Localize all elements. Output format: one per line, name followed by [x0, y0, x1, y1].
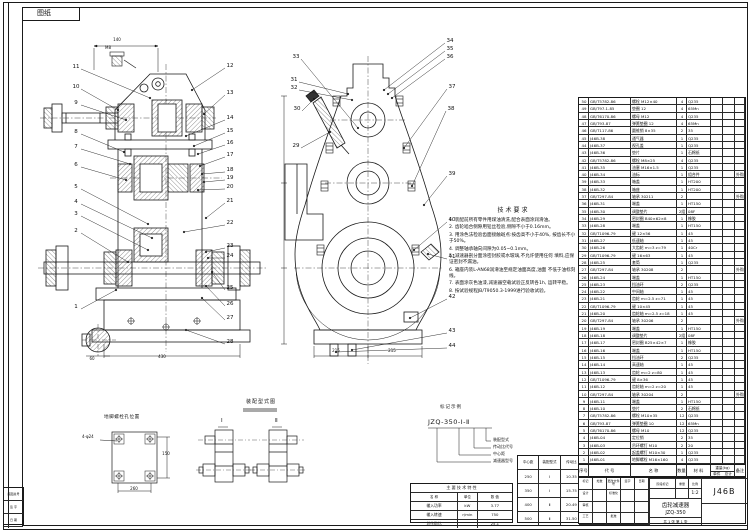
leader-dot-15 [193, 145, 195, 147]
bom-cell: J46B-23 [589, 281, 631, 287]
bom-cell: 1 [677, 376, 687, 382]
bom-cell: 1 [677, 383, 687, 389]
bom-cell: 12 [677, 412, 687, 418]
bom-row: 23J46B-21齿轮 m=2.5 z=71145 [579, 295, 745, 302]
designation-label-2: 传动比代号 [493, 445, 513, 449]
leader-dot-17 [199, 165, 201, 167]
bom-cell [735, 178, 745, 184]
bom-cell: 垫片 [631, 405, 677, 411]
bom-row: 35J46B-30调整垫片2组08F [579, 208, 745, 215]
bom-cell: J46B-30 [589, 208, 631, 214]
leader-line-22 [184, 225, 225, 232]
bom-cell: 21 [579, 310, 589, 316]
bom-cell: HT200 [687, 186, 711, 192]
spec-cell: 总传动比 [411, 520, 458, 528]
bom-cell [711, 303, 723, 309]
bom-cell [723, 339, 735, 345]
title-block-grid-cell: 日期 [635, 478, 649, 489]
bom-cell: 50 [579, 98, 589, 104]
front-view-callout-26: 26 [227, 302, 234, 308]
technical-notes: 技术要求 1. 装配前所有零件用煤油清洗,配合表面涂润滑油。2. 齿轮啮合侧隙用… [449, 207, 578, 297]
bom-row: 5GB/T6170-86螺母 M1012Q235 [579, 427, 745, 434]
bom-cell: 65Mn [687, 105, 711, 111]
bom-cell [711, 325, 723, 331]
leader-dot-4 [151, 237, 153, 239]
bom-cell [711, 208, 723, 214]
bom-cell: 15 [579, 354, 589, 360]
leader-dot-37 [403, 147, 405, 149]
bom-cell: 65Mn [687, 420, 711, 426]
bom-cell [687, 391, 711, 397]
assembly-type-diagrams [196, 409, 306, 482]
bom-cell: 25 [579, 281, 589, 287]
bom-row: 50GB/T5782-86螺栓 M12×404Q235 [579, 98, 745, 105]
bom-cell [735, 339, 745, 345]
bom-cell: 4 [677, 456, 687, 462]
bom-cell: HT150 [687, 398, 711, 404]
bom-cell: Q235 [687, 456, 711, 462]
leader-dot-7 [129, 163, 131, 165]
drawing-number-cell: J46B [701, 478, 747, 503]
bom-cell: GB/T297-84 [589, 193, 631, 199]
bom-cell: 4 [677, 113, 687, 119]
bom-cell: HT150 [687, 325, 711, 331]
bom-table: 50GB/T5782-86螺栓 M12×404Q23549GB/T97.1-85… [578, 97, 746, 477]
bom-cell [711, 339, 723, 345]
bom-cell [735, 288, 745, 294]
designation-leaders [428, 428, 492, 462]
bom-cell: 29 [579, 252, 589, 258]
bom-cell: 轴承 30206 [631, 317, 677, 323]
variant-table: 中心距装配型式传动比250Ⅰ10.35350Ⅰ15.75400Ⅱ20.49500… [517, 455, 583, 523]
title-block-grid-cell: 审核 [579, 502, 593, 513]
bom-cell [735, 259, 745, 265]
spec-cell: r/min [458, 511, 478, 519]
bom-cell [711, 288, 723, 294]
bom-cell: J46B-12 [589, 383, 631, 389]
bom-cell [711, 135, 723, 141]
bom-cell: 08F [687, 208, 711, 214]
bom-cell: 起盖螺钉 M10×30 [631, 449, 677, 455]
bom-cell: J46B-03 [589, 442, 631, 448]
bom-cell: 18 [579, 332, 589, 338]
front-view-callout-23: 23 [227, 244, 234, 250]
spec-table-title-row: 主 要 技 术 特 性 [411, 484, 512, 493]
bom-row: 44J46B-37视孔盖1Q235 [579, 142, 745, 149]
bom-cell [723, 274, 735, 280]
bom-cell: GB/T1096-79 [589, 252, 631, 258]
bom-cell: 1 [677, 288, 687, 294]
bom-cell: GB/T93-87 [589, 420, 631, 426]
bom-cell [723, 288, 735, 294]
bom-cell [711, 369, 723, 375]
title-block-grid-cell [593, 502, 607, 513]
bom-cell: 2 [677, 354, 687, 360]
bom-cell [735, 244, 745, 250]
front-view-callout-5: 5 [74, 185, 78, 191]
bom-cell: 2 [677, 193, 687, 199]
bom-row: 33J46B-28端盖1HT150 [579, 222, 745, 229]
bom-cell [723, 215, 735, 221]
bom-cell [723, 259, 735, 265]
bom-cell: 齿轮 m=2 z=80 [631, 369, 677, 375]
note-item-8: 8. 按试验规程JB/T9050.3-1999进行验收试验。 [449, 289, 578, 295]
bom-cell: J46B-37 [589, 142, 631, 148]
bom-cell [711, 442, 723, 448]
bom-cell: 4 [677, 120, 687, 126]
bom-cell [711, 354, 723, 360]
bom-cell: 6 [579, 420, 589, 426]
title-block-grid-row: 标记处数更改文件号签字日期 [579, 478, 649, 490]
bom-cell: J46B-22 [589, 288, 631, 294]
bom-cell [723, 405, 735, 411]
front-view-callout-12: 12 [227, 64, 234, 70]
bom-header-no: 序号 [579, 465, 589, 477]
bom-row: 10GB/T297-84轴承 302042外购 [579, 391, 745, 398]
title-block-grid-cell [635, 502, 649, 513]
bom-cell: 13 [579, 369, 589, 375]
engineering-drawing-sheet: 图纸 底图总号签 字日 期 [0, 0, 749, 530]
bom-cell [735, 310, 745, 316]
bom-cell [711, 420, 723, 426]
bom-cell: 45 [687, 252, 711, 258]
bom-cell: 45 [687, 303, 711, 309]
bom-cell: 45 [687, 361, 711, 367]
bom-cell [735, 376, 745, 382]
dim-value-1: M8 [105, 46, 111, 50]
bom-cell: GB/T6170-86 [589, 427, 631, 433]
bom-cell: 1 [677, 295, 687, 301]
bom-cell: 45 [687, 376, 711, 382]
bom-cell [735, 434, 745, 440]
bom-row: 22GB/T1096-79键 10×45145 [579, 303, 745, 310]
bom-cell: GB/T5782-86 [589, 157, 631, 163]
bom-cell: 9 [579, 398, 589, 404]
bom-cell [723, 347, 735, 353]
leader-dot-26 [205, 285, 207, 287]
leader-dot-20 [197, 189, 199, 191]
variant-table-row: 350Ⅰ15.75 [518, 484, 582, 498]
bom-cell: 36 [579, 200, 589, 206]
spec-cell: 3.77 [478, 502, 512, 510]
bom-row: 32GB/T1096-79键 12×56145 [579, 230, 745, 237]
dim-value-5: 215 [388, 349, 396, 353]
leader-line-43 [352, 333, 447, 350]
bom-cell: Q235 [687, 113, 711, 119]
bom-cell: 31 [579, 237, 589, 243]
bom-cell: 7 [579, 412, 589, 418]
bom-cell: 螺栓 M10×35 [631, 412, 677, 418]
bom-cell: 49 [579, 105, 589, 111]
bom-cell: 低速轴 [631, 237, 677, 243]
bom-cell [723, 369, 735, 375]
bom-cell: 2组 [677, 208, 687, 214]
bom-cell: 键 16×63 [631, 252, 677, 258]
bom-row: 3J46B-03吊环螺钉 M10220 [579, 442, 745, 449]
front-view-callout-27: 27 [227, 316, 234, 322]
bom-cell [735, 98, 745, 104]
bom-cell: J46B-32 [589, 186, 631, 192]
bom-cell: J46B-15 [589, 354, 631, 360]
variant-cell: 500 [518, 512, 539, 525]
bom-cell: Q235 [687, 135, 711, 141]
bom-cell [735, 281, 745, 287]
bom-row: 49GB/T97.1-85垫圈 12465Mn [579, 105, 745, 112]
bom-cell: 端盖 [631, 325, 677, 331]
leader-line-15 [194, 133, 225, 146]
bom-cell: GB/T117-86 [589, 127, 631, 133]
bom-cell [723, 135, 735, 141]
bom-cell: Q235 [687, 98, 711, 104]
bom-cell: 2组 [677, 332, 687, 338]
leader-dot-18 [201, 173, 203, 175]
bom-cell: 43 [579, 149, 589, 155]
dim-value-7: 150 [162, 452, 170, 456]
spec-header-cell: 名 称 [411, 493, 458, 501]
bom-cell [723, 449, 735, 455]
title-block-grid-cell [621, 490, 635, 501]
bom-cell [711, 252, 723, 258]
title-block-grid-cell: 签字 [621, 478, 635, 489]
bom-cell [711, 178, 723, 184]
bom-cell: 14 [579, 361, 589, 367]
bom-cell: J46B-18 [589, 332, 631, 338]
bom-row: 24J46B-22中间轴145 [579, 288, 745, 295]
side-view-callout-43: 43 [449, 329, 456, 335]
sheet-count-cell: 共 1 张 第 1 张 [649, 517, 701, 525]
leader-line-12 [192, 68, 225, 90]
front-view-callout-22: 22 [227, 221, 234, 227]
bom-cell [723, 456, 735, 462]
bom-cell: 油塞 M16×1.5 [631, 164, 677, 170]
title-block: 标记处数更改文件号签字日期设计标准化审核工艺批准 阶段标记 重量 比例 1:2 … [578, 477, 746, 524]
title-block-grid-row: 审核 [579, 502, 649, 514]
bom-cell: 1 [677, 398, 687, 404]
bom-row: 29GB/T1096-79键 16×63145 [579, 252, 745, 259]
front-view-callout-18: 18 [227, 168, 234, 174]
bom-cell: GB/T297-84 [589, 266, 631, 272]
bom-cell [711, 149, 723, 155]
bom-cell: 45 [687, 383, 711, 389]
bom-cell [735, 361, 745, 367]
bom-cell [687, 193, 711, 199]
bom-row: 1J46B-01地脚螺栓 M16×1604Q235 [579, 456, 745, 463]
bom-cell: 轴承 30204 [631, 391, 677, 397]
leader-line-42 [410, 299, 447, 318]
bom-cell: Q235 [687, 164, 711, 170]
bom-row: 28J46B-25套筒1Q235 [579, 259, 745, 266]
bom-cell [735, 230, 745, 236]
leader-dot-19 [203, 181, 205, 183]
bom-cell: GB/T1096-79 [589, 376, 631, 382]
spec-table-header-row: 名 称单位数 值 [411, 493, 512, 502]
bom-cell: 28 [579, 259, 589, 265]
side-view [281, 56, 442, 364]
title-block-grid-row: 设计标准化 [579, 490, 649, 502]
bom-cell [723, 266, 735, 272]
plate-hole-label: 4-φ24 [82, 435, 94, 439]
bom-cell: 47 [579, 120, 589, 126]
bom-cell [711, 434, 723, 440]
spec-header-cell: 数 值 [478, 493, 512, 501]
scale-label-cell: 比例 [688, 478, 701, 488]
bom-cell [711, 332, 723, 338]
leader-dot-5 [147, 223, 149, 225]
bom-cell [711, 295, 723, 301]
bom-cell [711, 383, 723, 389]
bom-cell: 箱座 [631, 186, 677, 192]
bom-cell: 键 10×45 [631, 303, 677, 309]
bom-cell: 套筒 [631, 259, 677, 265]
bom-cell: 视孔盖 [631, 142, 677, 148]
bom-cell: 08F [687, 332, 711, 338]
product-name: 齿轮减速器 [650, 501, 701, 509]
bom-cell [723, 244, 735, 250]
bom-cell: 橡胶 [687, 215, 711, 221]
bom-cell: 2 [677, 405, 687, 411]
bom-cell: 4 [677, 105, 687, 111]
title-block-grid-cell: 处数 [593, 478, 607, 489]
variant-cell: Ⅱ [539, 512, 560, 525]
bom-cell [711, 164, 723, 170]
bom-cell: 中间轴 [631, 288, 677, 294]
bom-cell: 调整垫片 [631, 332, 677, 338]
bom-cell [735, 295, 745, 301]
bom-cell [735, 405, 745, 411]
bom-cell: J46B-28 [589, 222, 631, 228]
designation-label-3: 中心距 [493, 452, 505, 456]
side-view-callout-30: 30 [294, 107, 301, 113]
bom-cell [723, 222, 735, 228]
bom-cell: 外购 [735, 391, 745, 397]
bom-cell: GB/T297-84 [589, 391, 631, 397]
bom-row: 43J46B-36垫片1石棉纸 [579, 149, 745, 156]
title-block-signature-grid: 标记处数更改文件号签字日期设计标准化审核工艺批准 [579, 478, 649, 525]
front-view-callout-14: 14 [227, 116, 234, 122]
title-block-grid-cell [607, 502, 621, 513]
bom-cell: 挡油环 [631, 281, 677, 287]
leader-dot-38 [411, 185, 413, 187]
bom-cell [735, 215, 745, 221]
bom-cell: J46B-13 [589, 369, 631, 375]
bom-cell: 端盖 [631, 274, 677, 280]
bom-cell: 1 [677, 252, 687, 258]
bom-cell: 组合件 [687, 171, 711, 177]
bom-cell: 1 [677, 237, 687, 243]
bom-cell [711, 200, 723, 206]
variant-table-header: 中心距装配型式传动比 [518, 456, 582, 470]
assembly-variant-2-label: Ⅱ [275, 419, 278, 425]
bom-cell [735, 325, 745, 331]
leader-dot-30 [313, 98, 315, 100]
bom-cell: 37 [579, 193, 589, 199]
bom-cell [711, 310, 723, 316]
bom-cell [711, 171, 723, 177]
bom-cell: 外购 [735, 266, 745, 272]
bom-cell [711, 127, 723, 133]
bom-cell [711, 274, 723, 280]
bom-cell: 螺栓 M12×40 [631, 98, 677, 104]
leader-line-34 [384, 43, 445, 90]
bom-row: 34J46B-29密封圈 B40×62×81橡胶 [579, 215, 745, 222]
bom-cell: 密封圈 B25×42×7 [631, 339, 677, 345]
leader-dot-12 [191, 89, 193, 91]
bom-row: 6GB/T93-87弹簧垫圈 101265Mn [579, 420, 745, 427]
bom-cell: J46B-36 [589, 149, 631, 155]
bom-cell: 2 [677, 442, 687, 448]
note-item-6: 6. 箱座内装L-AN68润滑油至规定油面高度,油面 不低于油标刻线。 [449, 268, 578, 280]
bom-cell: J46B-21 [589, 295, 631, 301]
dim-value-6: 260 [130, 487, 138, 491]
variant-cell: 350 [518, 484, 539, 497]
bom-cell: 1 [677, 361, 687, 367]
front-view-callout-19: 19 [227, 176, 234, 182]
bom-cell [735, 237, 745, 243]
bom-cell [711, 347, 723, 353]
bom-cell [711, 391, 723, 397]
bom-cell: 2 [677, 434, 687, 440]
front-view-callout-4: 4 [74, 200, 78, 206]
bom-cell: 20 [687, 442, 711, 448]
dim-value-3: 60 [89, 357, 94, 361]
bom-cell: 3 [579, 442, 589, 448]
bom-cell [711, 157, 723, 163]
note-item-2: 2. 齿轮啮合侧隙用铅丝检验,侧隙不小于0.16mm。 [449, 225, 578, 231]
bom-cell [711, 222, 723, 228]
bom-cell: 齿轮 m=2.5 z=71 [631, 295, 677, 301]
bom-cell [735, 332, 745, 338]
bom-cell: Q235 [687, 142, 711, 148]
bom-cell: 4 [677, 98, 687, 104]
spec-cell: 25.1 [478, 520, 512, 528]
bom-cell [735, 200, 745, 206]
spec-cell: 750 [478, 511, 512, 519]
bom-cell: 螺母 M12 [631, 113, 677, 119]
weight-value-cell [675, 488, 688, 498]
bom-cell: 33 [579, 222, 589, 228]
bom-cell [723, 120, 735, 126]
variant-cell: 400 [518, 498, 539, 511]
bom-cell [723, 391, 735, 397]
bom-cell: 45 [579, 135, 589, 141]
side-view-callout-29: 29 [293, 144, 300, 150]
bom-cell [735, 420, 745, 426]
bom-cell [723, 230, 735, 236]
bom-row: 20GB/T297-84轴承 302062外购 [579, 317, 745, 324]
bom-row: 4J46B-04定位销235 [579, 434, 745, 441]
bom-cell: 35 [687, 127, 711, 133]
bom-cell: 2 [677, 391, 687, 397]
bom-cell: 1 [677, 222, 687, 228]
assembly-variant-1-label: Ⅰ [221, 419, 223, 425]
bom-cell: 32 [579, 230, 589, 236]
bom-row: 8J46B-10垫片2石棉纸 [579, 405, 745, 412]
front-view-callout-21: 21 [227, 199, 234, 205]
bom-cell [687, 266, 711, 272]
title-block-grid-cell [635, 490, 649, 501]
dim-value-0: 140 [113, 38, 121, 42]
title-block-grid-cell: 标记 [579, 478, 593, 489]
leader-line-31 [299, 82, 348, 94]
bom-cell: 38 [579, 186, 589, 192]
bom-cell [735, 412, 745, 418]
bom-cell: 48 [579, 113, 589, 119]
side-view-callout-38: 38 [448, 107, 455, 113]
leader-dot-10 [117, 109, 119, 111]
bom-cell: J46B-29 [589, 215, 631, 221]
spec-table-row: 输入功率kW3.77 [411, 502, 512, 511]
leader-dot-25 [211, 271, 213, 273]
